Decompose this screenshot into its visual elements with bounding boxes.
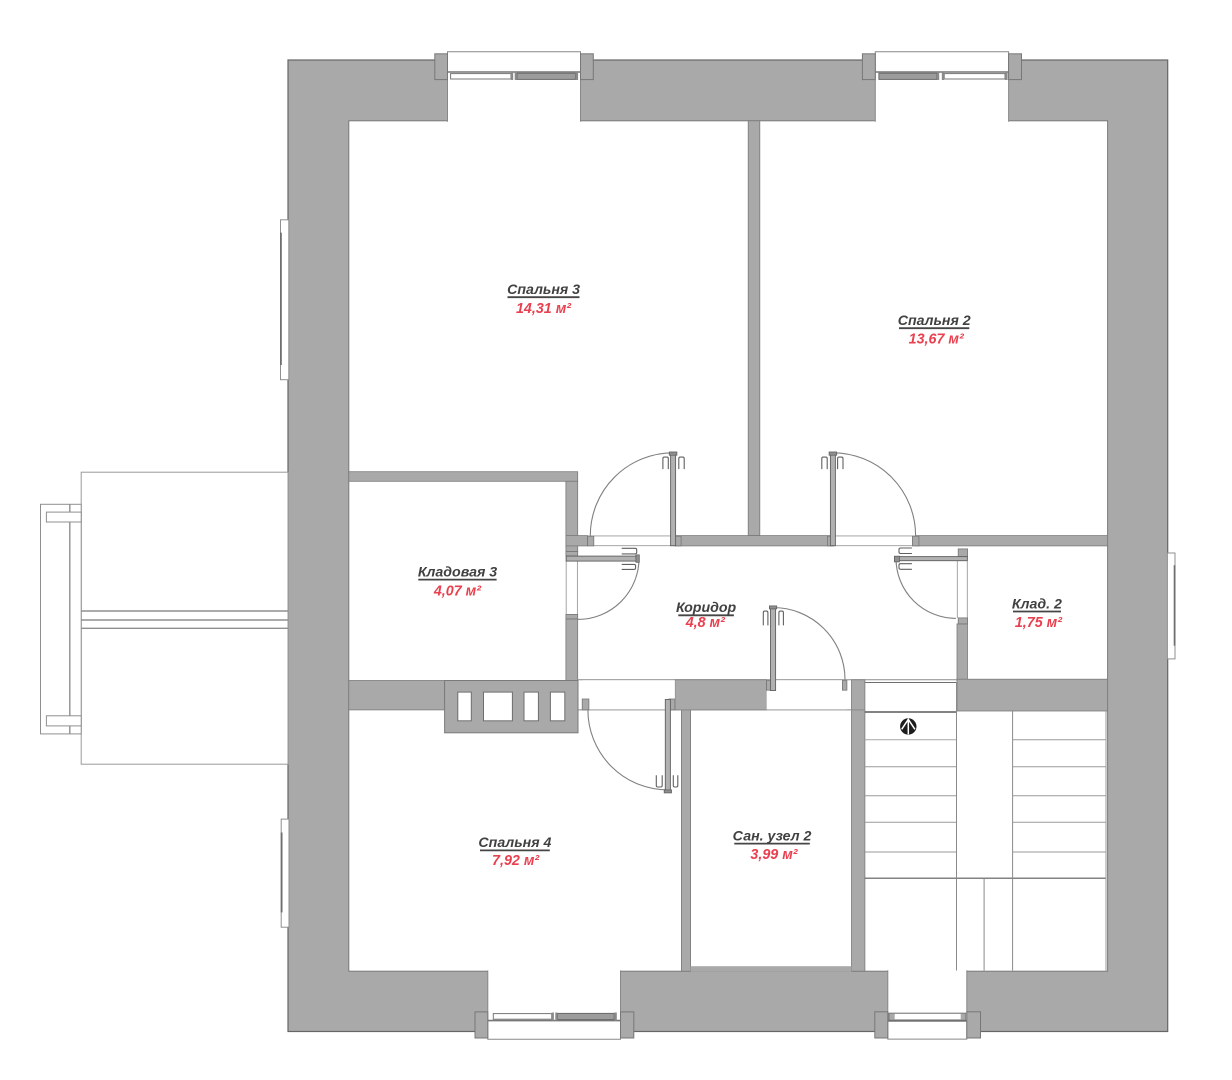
- svg-text:Кладовая 3: Кладовая 3: [418, 564, 497, 580]
- svg-text:14,31 м²: 14,31 м²: [516, 301, 572, 317]
- svg-text:13,67 м²: 13,67 м²: [909, 332, 965, 348]
- svg-text:Спальня 3: Спальня 3: [507, 282, 580, 298]
- svg-text:4,07 м²: 4,07 м²: [433, 584, 482, 600]
- svg-text:3,99 м²: 3,99 м²: [750, 847, 798, 863]
- svg-text:7,92 м²: 7,92 м²: [492, 853, 540, 869]
- svg-text:Сан. узел 2: Сан. узел 2: [733, 828, 812, 844]
- svg-text:Спальня 2: Спальня 2: [898, 313, 971, 329]
- svg-text:Коридор: Коридор: [676, 600, 737, 616]
- svg-text:1,75 м²: 1,75 м²: [1015, 615, 1063, 631]
- svg-text:Клад. 2: Клад. 2: [1012, 596, 1062, 612]
- svg-text:Спальня 4: Спальня 4: [478, 835, 551, 851]
- svg-text:4,8 м²: 4,8 м²: [685, 615, 726, 631]
